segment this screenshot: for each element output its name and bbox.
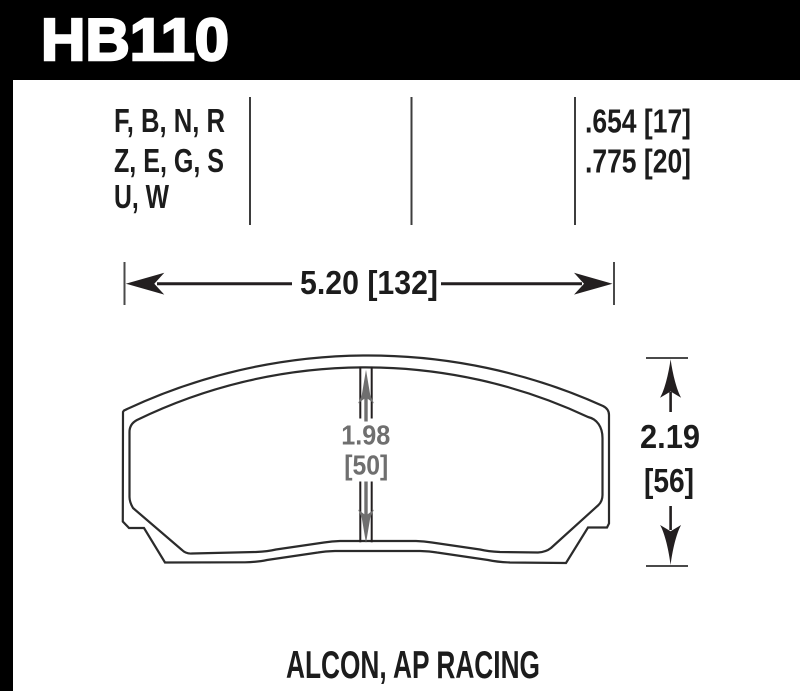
svg-text:[50]: [50] xyxy=(344,450,388,481)
svg-text:ALCON, AP RACING: ALCON, AP RACING xyxy=(286,644,540,687)
svg-text:Z, E, G, S: Z, E, G, S xyxy=(114,142,224,179)
svg-text:U, W: U, W xyxy=(114,178,170,215)
svg-text:HB110: HB110 xyxy=(41,7,229,73)
svg-text:2.19: 2.19 xyxy=(640,418,700,455)
svg-text:5.20 [132]: 5.20 [132] xyxy=(300,264,438,301)
svg-text:F, B, N, R: F, B, N, R xyxy=(114,102,225,139)
svg-text:.775 [20]: .775 [20] xyxy=(585,143,691,180)
svg-text:.654 [17]: .654 [17] xyxy=(585,103,691,140)
svg-text:[56]: [56] xyxy=(644,462,694,499)
svg-text:1.98: 1.98 xyxy=(341,420,390,451)
